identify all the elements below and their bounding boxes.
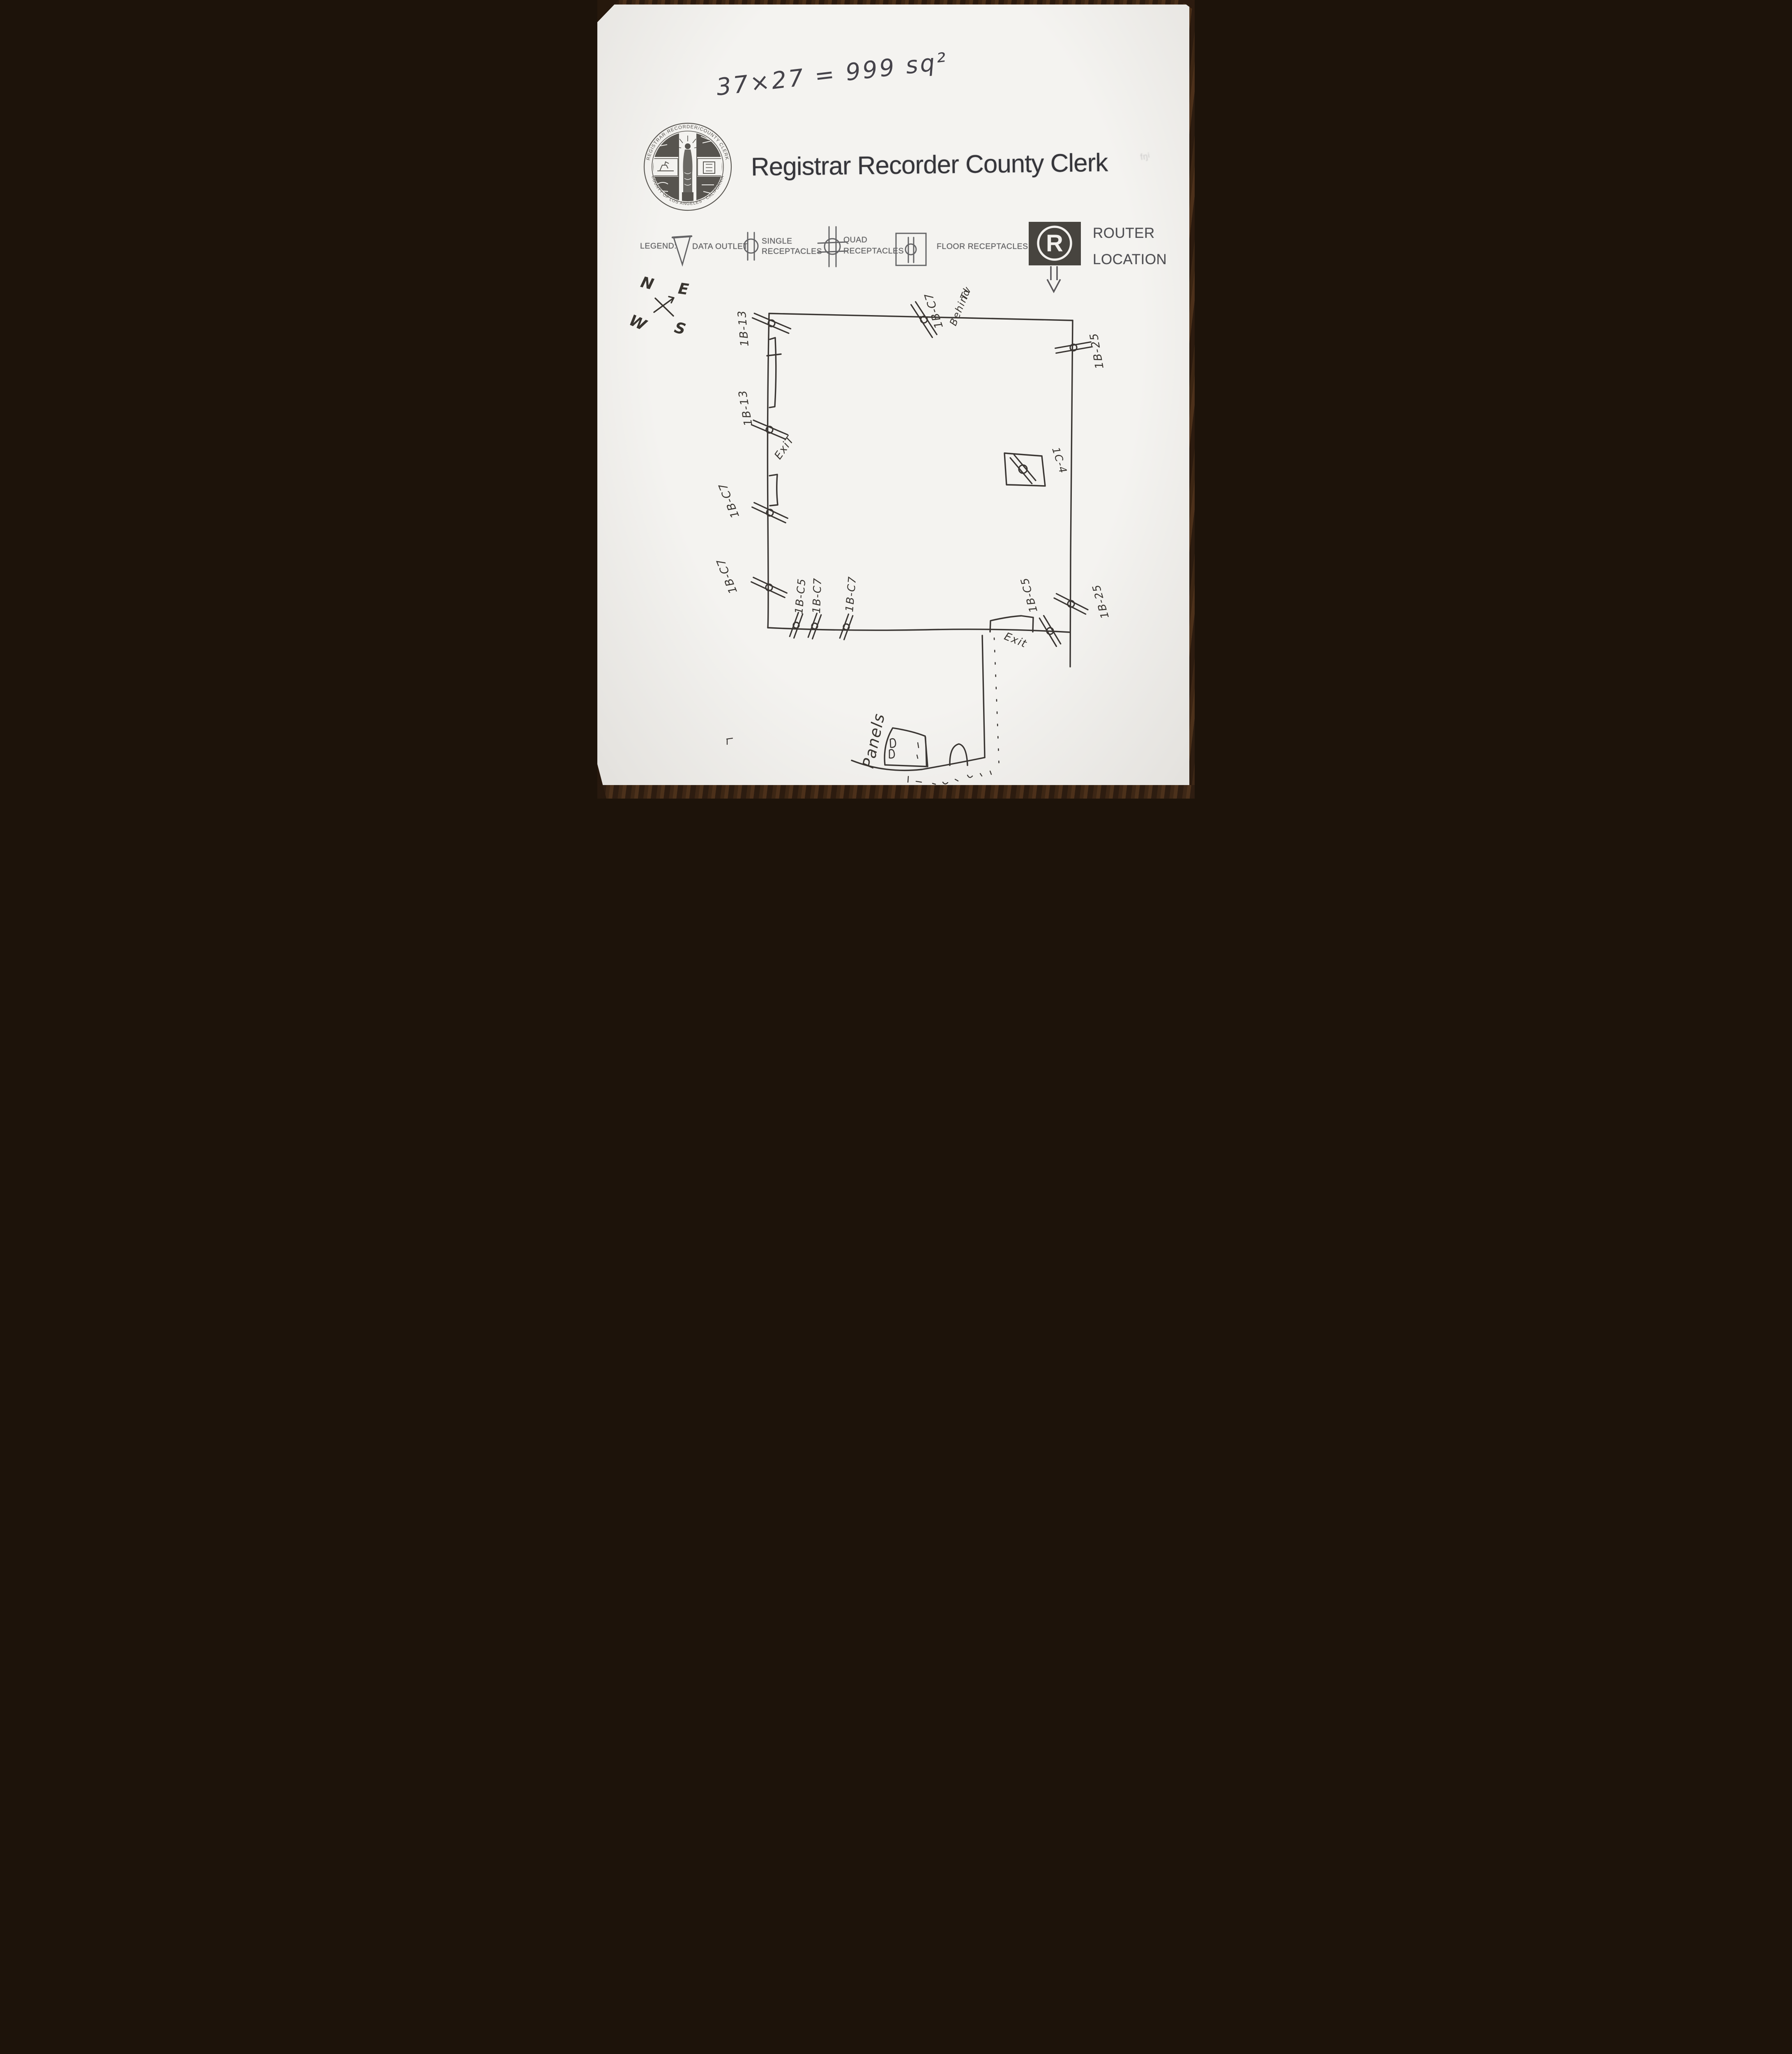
floor-receptacle-icon <box>896 233 926 265</box>
scanned-floor-plan-page: 37×27 = 999 sq² ᶠᵑⁱ Registrar Recorder C… <box>597 0 1195 799</box>
table-corner-bottom-left <box>597 764 606 799</box>
county-seal: REGISTRAR·RECORDER/COUNTY CLERK + COUNTY… <box>642 119 731 210</box>
bottom-dashes <box>908 771 991 784</box>
panels-scribble <box>889 739 896 758</box>
outlet-slash <box>1014 455 1036 481</box>
hallway-dashed-line <box>994 638 999 769</box>
wall-west <box>767 313 769 628</box>
table-edge-bottom <box>597 785 1195 799</box>
exit-door-west <box>769 474 778 506</box>
quad-receptacle-icon <box>818 227 848 267</box>
table-edge-top <box>597 0 1195 5</box>
table-corner-top-right <box>1180 0 1195 11</box>
room-outline <box>727 313 1073 784</box>
panels-ticks <box>917 743 919 758</box>
legend-symbols <box>673 227 926 267</box>
table-edge-right <box>1189 0 1195 799</box>
table-corner-top-left <box>597 0 619 22</box>
compass-cross <box>654 297 674 316</box>
data-outlet-icon <box>673 236 691 265</box>
panels-cabinet-edge <box>926 737 926 766</box>
router-location-icon: R <box>1029 222 1081 292</box>
diagram-canvas: REGISTRAR·RECORDER/COUNTY CLERK + COUNTY… <box>597 0 1195 799</box>
single-receptacle-icon <box>744 233 758 260</box>
router-letter: R <box>1046 230 1063 257</box>
router-down-arrow-icon <box>1047 266 1060 292</box>
hallway-wall <box>982 636 985 758</box>
outlet-slash <box>1010 458 1032 484</box>
stray-mark <box>727 738 732 744</box>
wall-east <box>1070 320 1073 667</box>
outlet-label: 1B-C7 <box>811 577 824 614</box>
